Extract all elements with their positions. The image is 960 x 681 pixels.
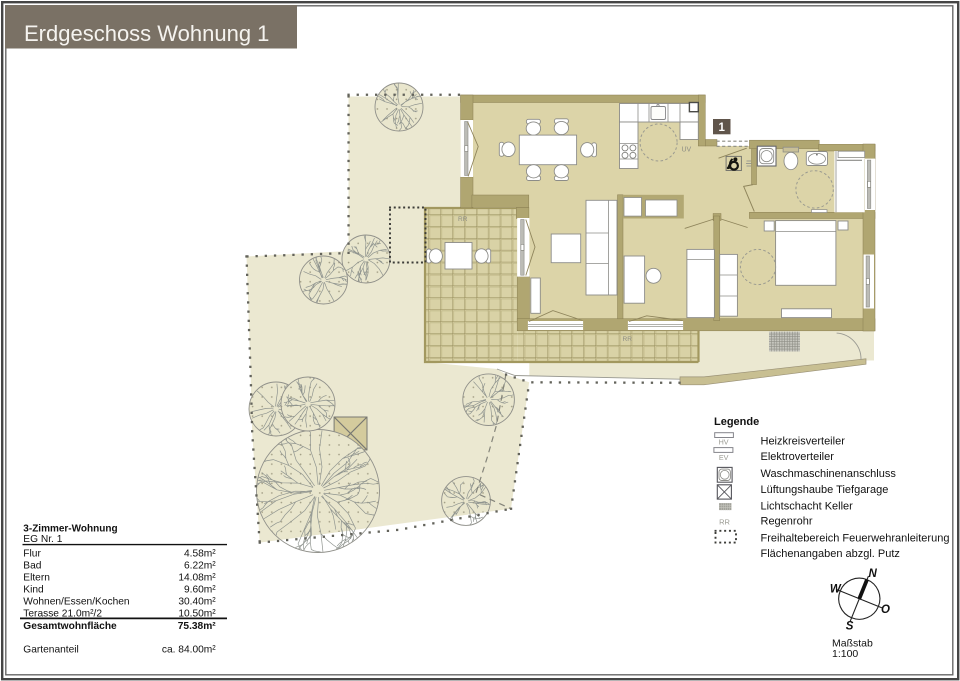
svg-text:RR: RR xyxy=(623,336,633,343)
svg-text:RR: RR xyxy=(719,518,730,527)
svg-text:Gartenanteil: Gartenanteil xyxy=(23,645,79,656)
svg-text:S: S xyxy=(846,620,854,632)
svg-text:Erdgeschoss Wohnung 1: Erdgeschoss Wohnung 1 xyxy=(24,21,269,46)
svg-text:EG Nr. 1: EG Nr. 1 xyxy=(23,534,62,545)
svg-text:30.40m²: 30.40m² xyxy=(178,597,216,608)
svg-text:EV: EV xyxy=(719,453,729,462)
svg-text:1: 1 xyxy=(718,122,725,134)
svg-text:9.60m²: 9.60m² xyxy=(184,585,216,596)
svg-text:UV: UV xyxy=(682,147,692,154)
svg-text:Gesamtwohnfläche: Gesamtwohnfläche xyxy=(23,621,117,632)
svg-text:75.38m²: 75.38m² xyxy=(178,621,217,632)
svg-text:Elektroverteiler: Elektroverteiler xyxy=(761,451,835,463)
svg-text:Eltern: Eltern xyxy=(23,573,50,584)
svg-text:1:100: 1:100 xyxy=(832,648,858,660)
svg-text:Wohnen/Essen/Kochen: Wohnen/Essen/Kochen xyxy=(23,597,129,608)
svg-text:W: W xyxy=(830,583,842,595)
svg-text:RR: RR xyxy=(458,216,468,223)
svg-text:O: O xyxy=(881,604,890,616)
svg-text:Lüftungshaube Tiefgarage: Lüftungshaube Tiefgarage xyxy=(761,484,889,496)
svg-text:Kind: Kind xyxy=(23,585,44,596)
svg-text:4.58m²: 4.58m² xyxy=(184,549,216,560)
svg-text:Flächenangaben abzgl. Putz: Flächenangaben abzgl. Putz xyxy=(761,548,900,560)
svg-text:6.22m²: 6.22m² xyxy=(184,561,216,572)
svg-text:N: N xyxy=(869,568,878,580)
svg-text:HV: HV xyxy=(719,438,729,447)
svg-text:Lichtschacht Keller: Lichtschacht Keller xyxy=(761,501,854,513)
svg-text:Heizkreisverteiler: Heizkreisverteiler xyxy=(761,435,846,447)
svg-text:14.08m²: 14.08m² xyxy=(178,573,216,584)
svg-text:ca. 84.00m²: ca. 84.00m² xyxy=(162,645,216,656)
svg-text:Waschmaschinenanschluss: Waschmaschinenanschluss xyxy=(761,468,897,480)
svg-text:Freihaltebereich Feuerwehranle: Freihaltebereich Feuerwehranleiterung xyxy=(761,532,950,544)
svg-text:3-Zimmer-Wohnung: 3-Zimmer-Wohnung xyxy=(23,524,117,535)
svg-text:Flur: Flur xyxy=(23,549,41,560)
svg-text:Legende: Legende xyxy=(714,416,759,428)
svg-text:Bad: Bad xyxy=(23,561,41,572)
svg-text:Regenrohr: Regenrohr xyxy=(761,516,813,528)
